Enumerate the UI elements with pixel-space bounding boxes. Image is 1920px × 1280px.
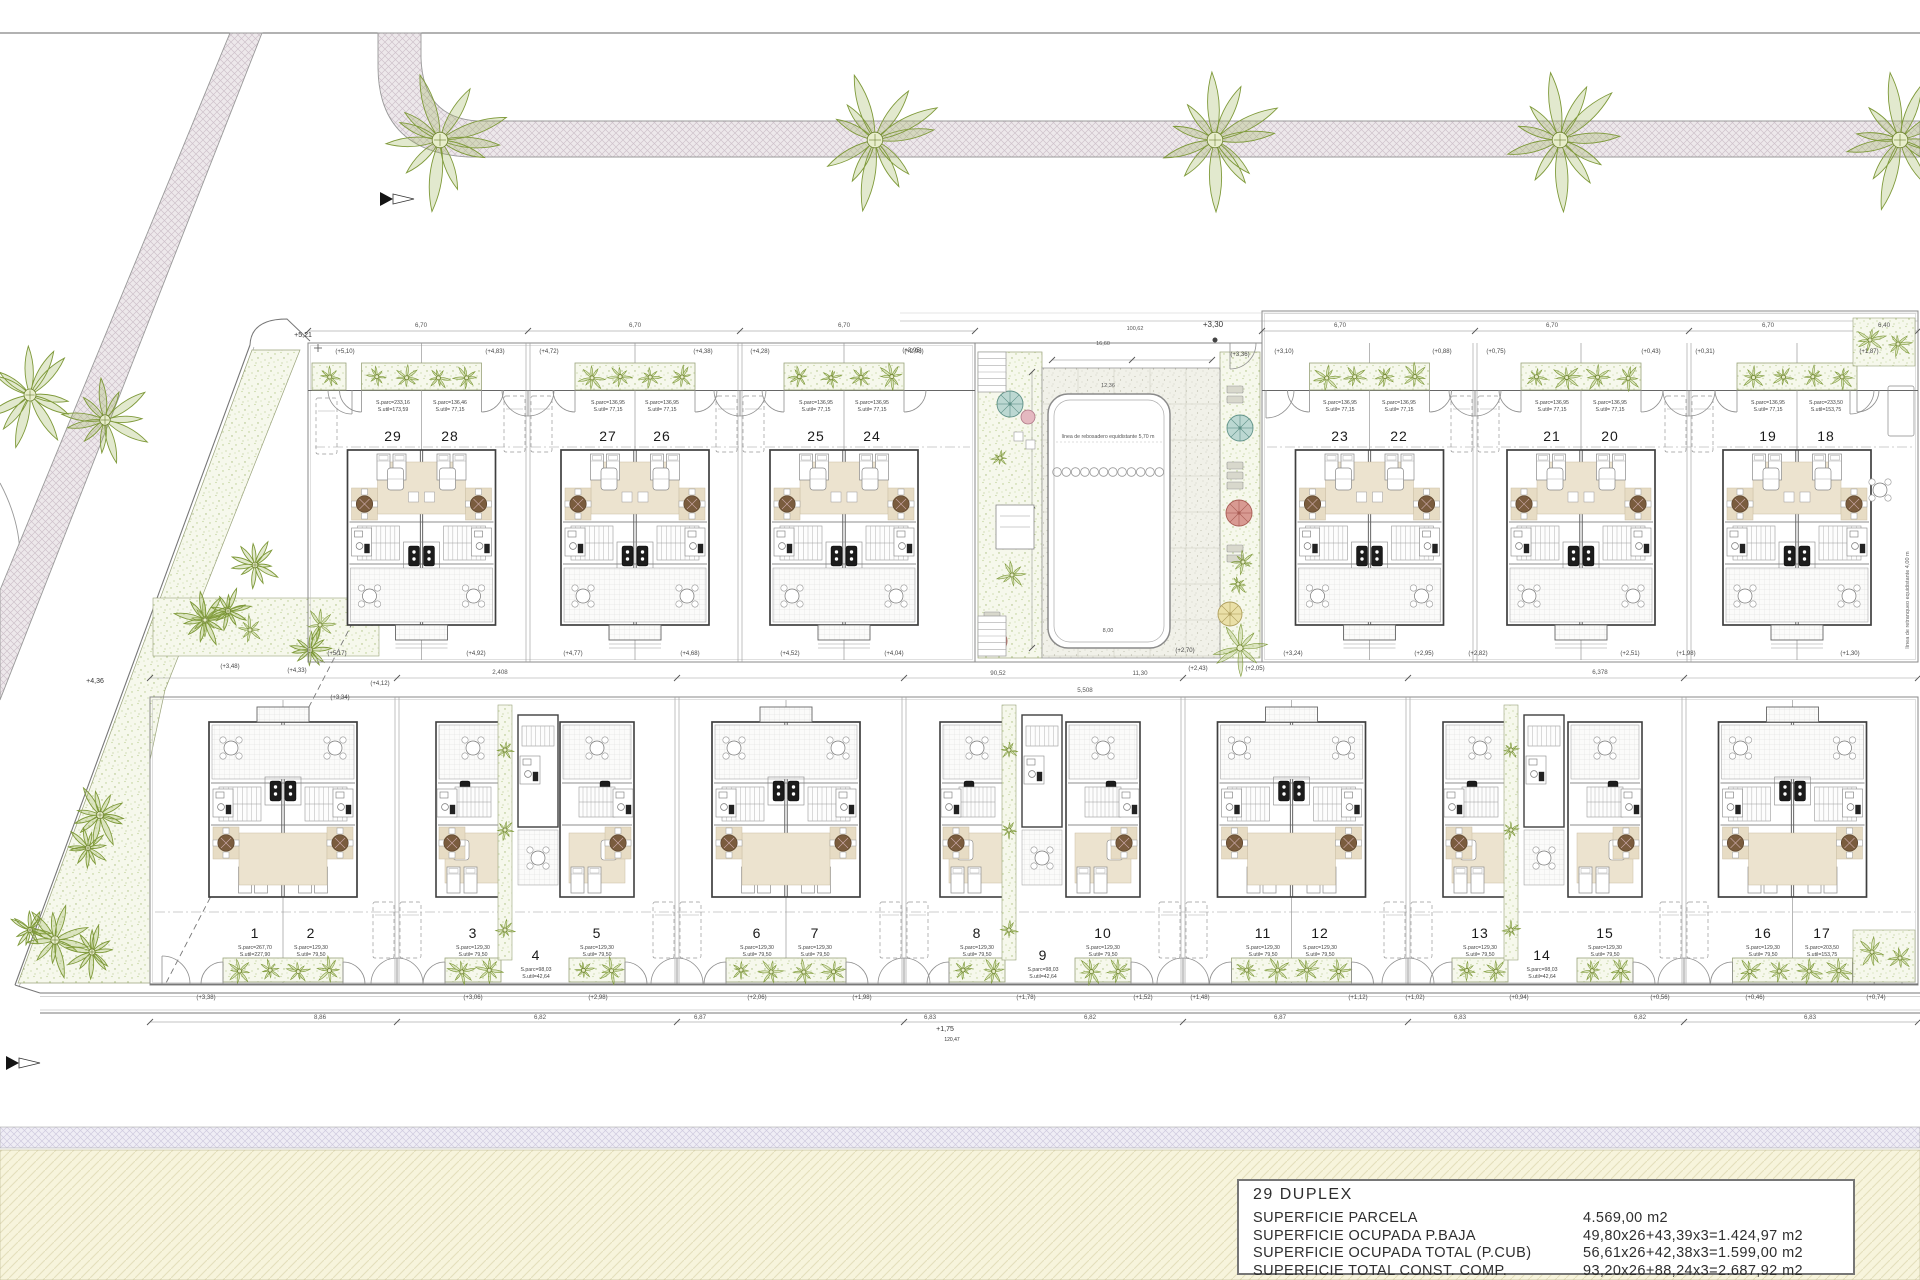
drawing-shape bbox=[274, 785, 277, 788]
drawing-shape bbox=[531, 851, 545, 865]
rect bbox=[1357, 492, 1367, 502]
drawing-shape bbox=[692, 585, 698, 591]
dimension-text: 6,70 bbox=[838, 322, 851, 329]
drawing-shape bbox=[1469, 753, 1475, 759]
drawing-shape bbox=[1282, 785, 1285, 788]
palm-trunk bbox=[328, 375, 332, 379]
level-marker: (+0,43) bbox=[1641, 349, 1660, 355]
benchmark-marker: +5,21 bbox=[294, 332, 312, 339]
rect bbox=[578, 544, 583, 553]
porch bbox=[818, 625, 870, 640]
door-arc bbox=[704, 962, 726, 984]
rect bbox=[784, 513, 790, 519]
palm-trunk bbox=[1237, 645, 1243, 651]
parasol-icon bbox=[997, 391, 1023, 417]
door-arc bbox=[482, 390, 504, 412]
drawing-shape bbox=[236, 753, 242, 759]
palm-trunk bbox=[797, 375, 801, 379]
drawing-shape bbox=[380, 192, 393, 206]
exterior-stairs-icon bbox=[978, 352, 1006, 392]
door-arc bbox=[1131, 962, 1153, 984]
palm-trunk bbox=[1337, 970, 1341, 974]
drawing-shape bbox=[1233, 741, 1247, 755]
rect bbox=[455, 456, 464, 461]
rect bbox=[831, 492, 841, 502]
planter-strip bbox=[312, 363, 346, 390]
drawing-shape bbox=[841, 804, 848, 811]
rect bbox=[615, 852, 621, 858]
drawing-shape bbox=[1092, 737, 1098, 743]
door-arc bbox=[1183, 958, 1209, 984]
drawing-shape bbox=[831, 741, 845, 755]
rect bbox=[1096, 869, 1105, 874]
dimension-text: 6,70 bbox=[1762, 322, 1775, 329]
level-marker: (+3,34) bbox=[330, 695, 349, 701]
parasol-icon bbox=[1218, 602, 1242, 626]
rect bbox=[1831, 456, 1840, 461]
rect bbox=[1121, 828, 1127, 834]
palm-trunk bbox=[610, 969, 614, 973]
palm-trunk bbox=[268, 968, 272, 972]
parking-space bbox=[1384, 902, 1405, 958]
drawing-shape bbox=[590, 741, 604, 755]
rect bbox=[1424, 489, 1430, 495]
unit-number: 17 bbox=[1813, 925, 1831, 941]
drawing-shape bbox=[1838, 601, 1844, 607]
site-plan-drawing: línea de retranqueo equidistante 3,00 ml… bbox=[0, 0, 1920, 1280]
door-arc bbox=[1715, 390, 1737, 412]
drawing-shape bbox=[889, 589, 903, 603]
unit-number: 2 bbox=[307, 925, 316, 941]
rect bbox=[719, 792, 727, 798]
drawing-shape bbox=[220, 753, 226, 759]
drawing-shape bbox=[1534, 585, 1540, 591]
level-marker: (+1,87) bbox=[1859, 349, 1878, 355]
rect bbox=[1225, 792, 1233, 798]
drawing-shape bbox=[1734, 741, 1748, 755]
rect bbox=[449, 869, 458, 874]
rect bbox=[409, 546, 420, 566]
rect bbox=[1780, 781, 1791, 801]
rect bbox=[878, 456, 887, 461]
title-block-row: SUPERFICIE PARCELA 4.569,00 m2 bbox=[1253, 1210, 1853, 1228]
rect bbox=[285, 781, 296, 801]
drawing-shape bbox=[1534, 601, 1540, 607]
rect bbox=[1599, 456, 1608, 461]
dining-table-icon bbox=[716, 827, 742, 859]
rect bbox=[847, 492, 857, 502]
rect bbox=[1357, 546, 1368, 566]
door-arc bbox=[162, 956, 190, 984]
porch bbox=[609, 625, 661, 640]
dimension-text: 100,62 bbox=[1127, 326, 1144, 332]
drawing-shape bbox=[1798, 792, 1801, 795]
palm-trunk bbox=[1010, 573, 1014, 577]
palm-trunk bbox=[327, 969, 331, 973]
drawing-shape bbox=[462, 737, 468, 743]
parking-space bbox=[907, 902, 928, 958]
drawing-shape bbox=[966, 737, 972, 743]
drawing-shape bbox=[1306, 585, 1312, 591]
palm-trunk bbox=[1868, 338, 1872, 342]
bathroom-icon bbox=[1843, 789, 1863, 817]
drawing-shape bbox=[1533, 847, 1539, 853]
rect bbox=[1644, 544, 1649, 553]
unit-area-label: S.parc=136,95 bbox=[1535, 400, 1569, 406]
parking-space bbox=[1478, 396, 1499, 452]
drawing-shape bbox=[723, 737, 729, 743]
stairs-icon bbox=[1462, 787, 1498, 817]
rect bbox=[907, 544, 912, 553]
planter-strip bbox=[726, 958, 846, 983]
unit-number: 21 bbox=[1543, 428, 1561, 444]
drawing-shape bbox=[478, 601, 484, 607]
drawing-shape bbox=[412, 550, 415, 553]
bathroom-icon bbox=[1222, 789, 1242, 817]
drawing-shape bbox=[374, 601, 380, 607]
drawing-shape bbox=[1516, 543, 1523, 550]
porch bbox=[1771, 625, 1823, 640]
palm-trunk bbox=[859, 375, 863, 379]
palm-trunk bbox=[1116, 969, 1120, 973]
drawing-shape bbox=[478, 737, 484, 743]
stairs-icon bbox=[1026, 726, 1058, 746]
title-block-row: SUPERFICIE OCUPADA TOTAL (P.CUB) 56,61x2… bbox=[1253, 1245, 1853, 1263]
unit-area-label: S.util= 77,15 bbox=[802, 407, 831, 413]
drawing-shape bbox=[1734, 585, 1740, 591]
unit-area-label: S.util= 79,50 bbox=[1466, 952, 1495, 958]
drawing-shape bbox=[1849, 753, 1855, 759]
title-block-value: 49,80x26+43,39x3=1.424,97 m2 bbox=[1583, 1228, 1803, 1246]
level-marker: (+3,48) bbox=[220, 664, 239, 670]
drawing-shape bbox=[1473, 741, 1487, 755]
drawing-shape bbox=[777, 785, 780, 788]
drawing-shape bbox=[478, 753, 484, 759]
dining-table-icon bbox=[1613, 827, 1639, 859]
unit-number: 13 bbox=[1471, 925, 1489, 941]
rect bbox=[729, 805, 734, 814]
unit-area-label: S.parc=129,30 bbox=[456, 945, 490, 951]
drawing-shape bbox=[843, 753, 849, 759]
drawing-shape bbox=[1337, 741, 1351, 755]
parking-space bbox=[1687, 902, 1708, 958]
parking-space bbox=[504, 396, 525, 452]
level-marker: (+1,78) bbox=[1016, 995, 1035, 1001]
planter-strip bbox=[1310, 362, 1430, 390]
level-marker: (+0,75) bbox=[1486, 349, 1505, 355]
sun-lounger bbox=[1227, 396, 1243, 403]
drawing-shape bbox=[1469, 737, 1475, 743]
door-arc bbox=[677, 958, 703, 984]
palm-trunk bbox=[1007, 828, 1011, 832]
rect bbox=[1122, 792, 1130, 798]
drawing-shape bbox=[527, 863, 533, 869]
dining-table-icon bbox=[679, 488, 705, 520]
drawing-shape bbox=[843, 737, 849, 743]
parasol-pole bbox=[1008, 402, 1011, 405]
stairs-icon bbox=[579, 787, 615, 817]
rect bbox=[1815, 456, 1824, 461]
door-arc bbox=[846, 962, 868, 984]
unit-number: 5 bbox=[593, 925, 602, 941]
door-arc bbox=[1210, 962, 1232, 984]
drawing-shape bbox=[1783, 785, 1786, 788]
rect bbox=[1387, 456, 1396, 461]
rect bbox=[466, 869, 475, 874]
bathroom-icon bbox=[1342, 789, 1362, 817]
swimming-pool bbox=[1048, 394, 1170, 648]
palm-trunk bbox=[1245, 968, 1249, 972]
palm-trunk bbox=[1619, 969, 1623, 973]
palm-trunk bbox=[1325, 376, 1329, 380]
unit-number: 4 bbox=[532, 947, 541, 963]
door-arc bbox=[904, 390, 926, 412]
drawing-shape bbox=[1572, 557, 1575, 560]
drawing-shape bbox=[885, 585, 891, 591]
rect bbox=[1424, 513, 1430, 519]
drawing-shape bbox=[462, 601, 468, 607]
parking-space bbox=[1692, 396, 1713, 452]
rect bbox=[533, 772, 538, 781]
drawing-shape bbox=[1348, 753, 1354, 759]
rect bbox=[1310, 513, 1316, 519]
drawing-shape bbox=[602, 753, 608, 759]
drawing-shape bbox=[1849, 737, 1855, 743]
parking-space bbox=[1451, 396, 1472, 452]
planter-strip bbox=[1733, 958, 1853, 984]
rect bbox=[1771, 456, 1780, 461]
rect bbox=[1851, 513, 1857, 519]
drawing-shape bbox=[525, 771, 532, 778]
rect bbox=[523, 759, 531, 765]
rect bbox=[1026, 440, 1035, 449]
unit-number: 24 bbox=[863, 428, 881, 444]
bathroom-icon bbox=[1727, 528, 1747, 556]
unit-area-label: S.util=153,75 bbox=[1811, 407, 1842, 413]
unit-area-label: S.util= 77,15 bbox=[858, 407, 887, 413]
rect bbox=[1851, 489, 1857, 495]
drawing-shape bbox=[1424, 543, 1431, 550]
door-arc bbox=[1352, 962, 1374, 984]
drawing-shape bbox=[1332, 737, 1338, 743]
drawing-shape bbox=[588, 585, 594, 591]
living-room-floor bbox=[1749, 833, 1837, 885]
parcel-boundary bbox=[15, 319, 1920, 1013]
porch bbox=[1555, 625, 1607, 640]
unit-number: 3 bbox=[469, 925, 478, 941]
drawing-shape bbox=[340, 737, 346, 743]
palm-trunk bbox=[1837, 969, 1841, 973]
drawing-shape bbox=[1031, 847, 1037, 853]
palm-tree-icon bbox=[0, 346, 68, 447]
level-marker: (+4,38) bbox=[693, 349, 712, 355]
rect bbox=[475, 531, 483, 537]
rect bbox=[622, 546, 633, 566]
drawing-shape bbox=[1244, 753, 1250, 759]
palm-trunk bbox=[503, 748, 507, 752]
drawing-shape bbox=[1360, 550, 1363, 553]
bathroom-icon bbox=[894, 528, 914, 556]
rect bbox=[365, 544, 370, 553]
level-marker: (+3,06) bbox=[463, 995, 482, 1001]
parking-space bbox=[880, 902, 901, 958]
rect bbox=[1457, 805, 1462, 814]
drawing-shape bbox=[412, 557, 415, 560]
rect bbox=[1303, 531, 1311, 537]
drawing-shape bbox=[1375, 557, 1378, 560]
dining-table-icon bbox=[466, 488, 492, 520]
unit-number: 10 bbox=[1094, 925, 1112, 941]
drawing-shape bbox=[899, 543, 906, 550]
unit-area-label: S.util= 79,50 bbox=[583, 952, 612, 958]
rect bbox=[223, 852, 229, 858]
rect bbox=[1740, 544, 1745, 553]
rect bbox=[784, 489, 790, 495]
level-diamond bbox=[1213, 338, 1218, 343]
parasol-icon bbox=[1227, 415, 1253, 441]
stairs-icon bbox=[455, 787, 491, 817]
door-arc bbox=[762, 390, 784, 412]
drawing-shape bbox=[827, 753, 833, 759]
drawing-shape bbox=[739, 737, 745, 743]
drawing-shape bbox=[324, 753, 330, 759]
planter-strip bbox=[223, 956, 343, 983]
drawing-shape bbox=[1572, 550, 1575, 553]
palm-trunk bbox=[1007, 748, 1011, 752]
drawing-shape bbox=[1727, 804, 1734, 811]
palm-trunk bbox=[1276, 968, 1280, 972]
unit-area-label: S.parc=136,95 bbox=[591, 400, 625, 406]
drawing-shape bbox=[358, 585, 364, 591]
title-block-project-name: 29 DUPLEX bbox=[1253, 1186, 1853, 1204]
rect bbox=[476, 513, 482, 519]
drawing-shape bbox=[1869, 495, 1875, 501]
rect bbox=[575, 489, 581, 495]
planter-strip bbox=[1232, 958, 1352, 983]
rect bbox=[1346, 852, 1352, 858]
drawing-shape bbox=[797, 585, 803, 591]
dining-table-icon bbox=[774, 488, 800, 520]
drawing-shape bbox=[274, 792, 277, 795]
drawing-shape bbox=[462, 753, 468, 759]
benchmark-marker: +4,36 bbox=[86, 678, 104, 685]
flag-marker-icon bbox=[380, 192, 414, 206]
unit-area-label: S.util= 77,15 bbox=[1326, 407, 1355, 413]
rect bbox=[485, 544, 490, 553]
drawing-shape bbox=[1322, 585, 1328, 591]
drawing-shape bbox=[1348, 737, 1354, 743]
drawing-shape bbox=[982, 753, 988, 759]
door-arc bbox=[927, 962, 949, 984]
porch bbox=[1344, 625, 1396, 640]
rect bbox=[1132, 805, 1137, 814]
dining-table-icon bbox=[1336, 827, 1362, 859]
dining-table-icon bbox=[1837, 827, 1863, 859]
drawing-shape bbox=[1803, 557, 1806, 560]
palm-trunk bbox=[503, 928, 507, 932]
rect bbox=[1623, 852, 1629, 858]
title-block-label: SUPERFICIE OCUPADA P.BAJA bbox=[1253, 1228, 1583, 1246]
drawing-shape bbox=[1108, 737, 1114, 743]
stairs-icon bbox=[522, 726, 554, 746]
rect bbox=[1730, 531, 1738, 537]
unit-area-label: S.util= 77,15 bbox=[1538, 407, 1567, 413]
dimension-text: 6,83 bbox=[1804, 1014, 1817, 1021]
drawing-shape bbox=[289, 792, 292, 795]
bathroom-icon bbox=[1723, 789, 1743, 817]
drawing-shape bbox=[442, 804, 449, 811]
bathroom-icon bbox=[1621, 789, 1641, 817]
drawing-shape bbox=[626, 557, 629, 560]
dining-table-icon bbox=[1414, 488, 1440, 520]
duplex-building bbox=[1210, 700, 1374, 984]
rect bbox=[590, 869, 599, 874]
door-arc bbox=[371, 958, 397, 984]
unit-number: 16 bbox=[1754, 925, 1772, 941]
unit-number: 20 bbox=[1601, 428, 1619, 444]
dining-table-icon bbox=[943, 827, 969, 859]
rect bbox=[1853, 930, 1915, 982]
drawing-shape bbox=[1838, 741, 1852, 755]
rect bbox=[1737, 513, 1743, 519]
parking-space bbox=[1660, 902, 1681, 958]
stairs-icon bbox=[1528, 726, 1560, 746]
unit-area-label: S.parc=129,30 bbox=[1746, 945, 1780, 951]
door-arc bbox=[423, 962, 445, 984]
rect bbox=[689, 513, 695, 519]
rect bbox=[337, 852, 343, 858]
planter-strip bbox=[569, 957, 625, 985]
unit-area-label: S.parc=129,30 bbox=[740, 945, 774, 951]
unit-area-label: S.parc=98,03 bbox=[520, 967, 551, 973]
palm-trunk bbox=[1241, 560, 1245, 564]
level-marker: (+4,83) bbox=[485, 349, 504, 355]
dining-table-icon bbox=[1111, 827, 1137, 859]
palm-trunk bbox=[769, 970, 773, 974]
planter-strip bbox=[949, 958, 1005, 983]
level-marker: (+2,05) bbox=[1245, 666, 1264, 672]
drawing-shape bbox=[356, 543, 363, 550]
unit-area-label: S.parc=129,30 bbox=[1246, 945, 1280, 951]
dimension-text: 6,378 bbox=[1592, 669, 1608, 676]
level-marker: (+0,46) bbox=[1745, 995, 1764, 1001]
dining-table-icon bbox=[1727, 488, 1753, 520]
rect bbox=[440, 792, 448, 798]
rect bbox=[1846, 792, 1854, 798]
unit-area-label: S.parc=136,95 bbox=[799, 400, 833, 406]
bathroom-icon bbox=[1420, 528, 1440, 556]
level-marker: (+2,70) bbox=[1175, 648, 1194, 654]
flag-marker-icon bbox=[6, 1056, 40, 1070]
rect bbox=[773, 781, 784, 801]
planter-strip bbox=[784, 363, 904, 390]
door-arc bbox=[651, 958, 677, 984]
bathroom-icon bbox=[1300, 528, 1320, 556]
sun-lounger bbox=[1227, 462, 1243, 469]
drawing-shape bbox=[1885, 495, 1891, 501]
rect bbox=[609, 456, 618, 461]
rect bbox=[1800, 492, 1810, 502]
level-marker: (+4,72) bbox=[539, 349, 558, 355]
unit-area-label: S.util= 79,50 bbox=[1306, 952, 1335, 958]
parasol-icon bbox=[1226, 500, 1252, 526]
drawing-shape bbox=[1226, 804, 1233, 811]
rect bbox=[336, 792, 344, 798]
palm-trunk bbox=[1896, 342, 1900, 346]
level-marker: (+3,38) bbox=[196, 995, 215, 1001]
drawing-shape bbox=[1485, 753, 1491, 759]
drawing-shape bbox=[1332, 753, 1338, 759]
